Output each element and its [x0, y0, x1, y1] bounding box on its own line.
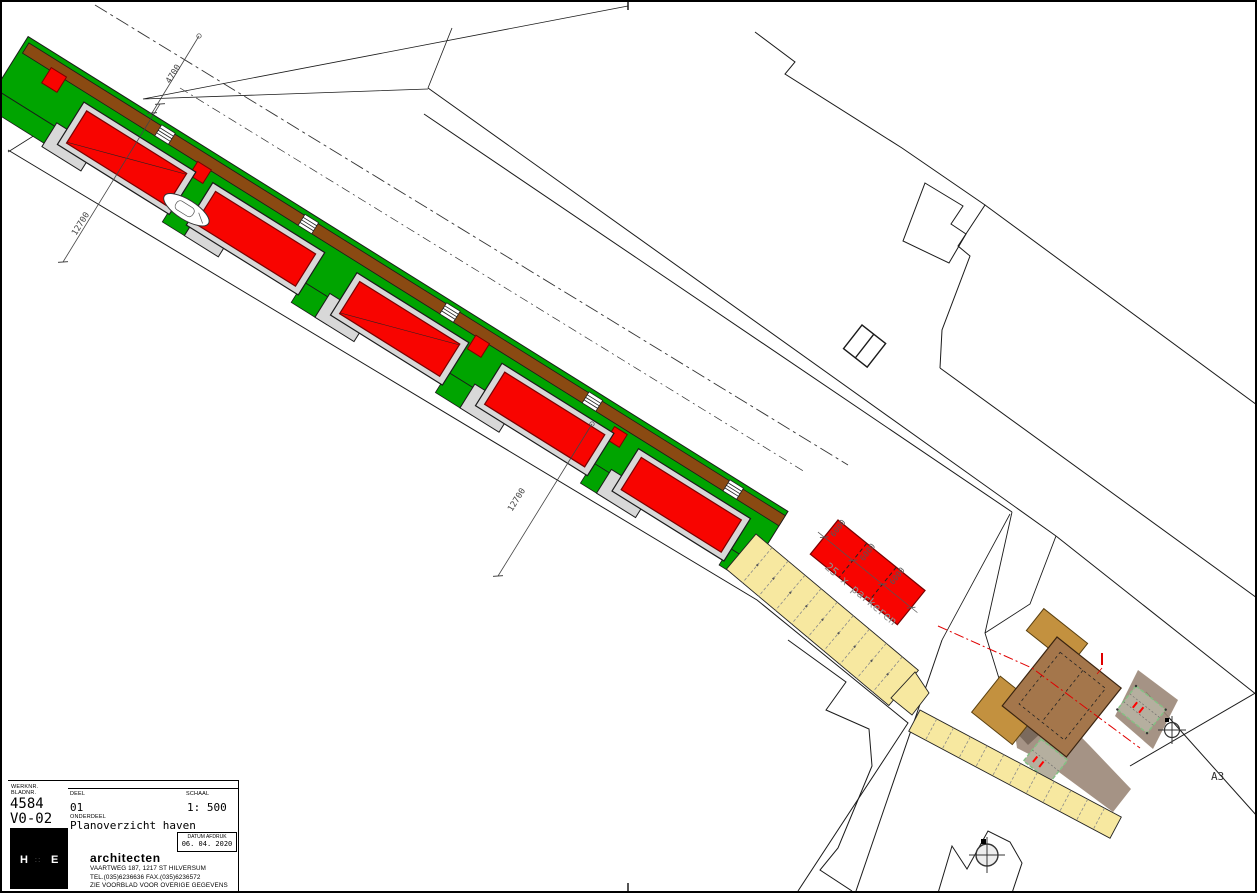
boundary-zigzag-topright — [755, 32, 985, 368]
divider — [68, 788, 238, 789]
firm-name: architecten — [90, 851, 161, 865]
road-edge-upper — [428, 88, 1056, 536]
harbour-strip — [0, 37, 788, 585]
datum-value: 06. 04. 2020 — [178, 840, 236, 848]
deel-value: 01 — [70, 802, 83, 813]
onderdeel-value: Planoverzicht haven — [70, 820, 196, 831]
existing-shed-outline — [844, 325, 886, 367]
schaal-value: 1: 500 — [187, 802, 227, 813]
deel-label: DEEL — [70, 791, 85, 797]
firm-logo: H ∷ E — [10, 828, 68, 889]
schaal-label: SCHAAL — [186, 791, 209, 797]
title-block: WERKNR. BLADNR. 4584 V0-02 DEEL SCHAAL 0… — [8, 780, 239, 892]
dimension-label: 12700 — [70, 211, 92, 238]
logo-letter-h: H — [20, 854, 28, 866]
site-plan-svg: 12700 4700 12700 6000 6000 6000 — [0, 0, 1257, 893]
dwelling-row — [42, 96, 751, 570]
road-edge-lower — [424, 114, 1012, 512]
firm-phone: TEL.(035)6236636 FAX.(035)6236572 — [90, 874, 200, 881]
logo-mark: ∷ — [35, 856, 40, 865]
sheet-number: V0-02 — [10, 812, 52, 826]
road-band — [23, 43, 786, 526]
sheet-size-label: A3 — [1211, 770, 1224, 783]
firm-address: VAARTWEG 187, 1217 ST HILVERSUM — [90, 865, 206, 872]
logo-letter-e: E — [51, 854, 58, 866]
firm-note: ZIE VOORBLAD VOOR OVERIGE GEGEVENS — [90, 882, 228, 889]
work-number: 4584 — [10, 797, 44, 811]
survey-point-large — [969, 837, 1005, 873]
dimension-label: 12700 — [506, 487, 528, 514]
drawing-sheet: 12700 4700 12700 6000 6000 6000 — [0, 0, 1257, 893]
print-date-box: DATUM AFDRUK 06. 04. 2020 — [177, 832, 237, 852]
existing-building-outline — [903, 183, 966, 263]
